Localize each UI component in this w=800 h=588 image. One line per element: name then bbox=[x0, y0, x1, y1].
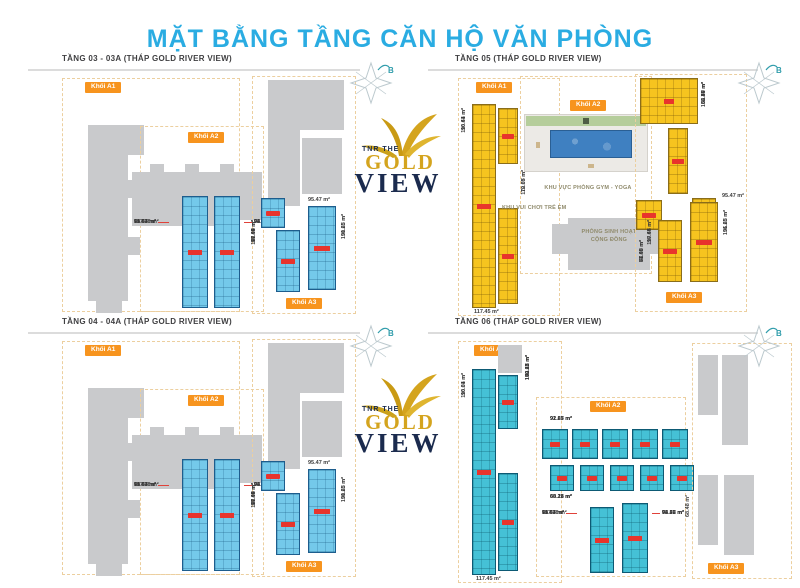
area-labels-left: 65.47 m²71.54 m²90.04 m²117.38 m² bbox=[542, 511, 586, 571]
unit-number-chip bbox=[587, 476, 597, 481]
lounge-chairs bbox=[528, 130, 548, 160]
area-label: 117.45 m² bbox=[252, 220, 258, 245]
unit-number-chip bbox=[281, 259, 295, 264]
building-gray bbox=[498, 345, 522, 373]
unit-number-chip bbox=[314, 509, 330, 514]
divider bbox=[428, 69, 758, 71]
floor-title: TẦNG 05 (THÁP GOLD RIVER VIEW) bbox=[455, 54, 602, 63]
unit-tower-yellow bbox=[690, 202, 718, 282]
unit-number-chip bbox=[647, 476, 657, 481]
floor-title: TẦNG 03 - 03A (THÁP GOLD RIVER VIEW) bbox=[62, 54, 232, 63]
building-gray bbox=[302, 138, 342, 194]
building-gray bbox=[698, 355, 718, 415]
block-chip-a3: Khối A3 bbox=[708, 563, 744, 574]
north-compass-icon: B bbox=[348, 323, 394, 369]
svg-text:B: B bbox=[388, 66, 394, 75]
north-compass-icon: B bbox=[736, 60, 782, 106]
area-labels-vertical: 77.45 m²81.09 m²90.44 m²117.45 m² bbox=[250, 483, 260, 575]
building-gray bbox=[300, 343, 344, 393]
building-gray bbox=[552, 224, 568, 254]
divider bbox=[28, 332, 360, 334]
unit-tower-blue bbox=[261, 461, 285, 491]
unit-tower-cyan bbox=[498, 375, 518, 429]
lounge-chairs bbox=[550, 162, 632, 169]
lounge-chair-icon bbox=[588, 164, 594, 168]
swimming-pool bbox=[550, 130, 632, 158]
building-gray bbox=[88, 125, 144, 155]
unit-tower-cyan bbox=[670, 465, 694, 491]
block-chip-a3: Khối A3 bbox=[286, 298, 322, 309]
area-label: 117.45 m² bbox=[476, 577, 501, 583]
tnr-gold-view-logo: TNR THE GOLD VIEW bbox=[352, 372, 448, 455]
unit-number-chip bbox=[266, 211, 280, 216]
building-gray bbox=[724, 475, 754, 555]
unit-tower-blue bbox=[214, 459, 240, 571]
area-label: 95.47 m² bbox=[308, 461, 330, 467]
svg-text:B: B bbox=[388, 329, 394, 338]
area-label: 94.06 m² bbox=[652, 511, 684, 517]
block-chip-a2: Khối A2 bbox=[570, 100, 606, 111]
unit-number-chip bbox=[477, 204, 491, 209]
unit-tower-yellow bbox=[658, 220, 682, 282]
building-gray bbox=[96, 301, 122, 313]
north-compass-icon: B bbox=[348, 60, 394, 106]
divider bbox=[428, 332, 758, 334]
unit-tower-blue bbox=[182, 459, 208, 571]
area-labels-vertical: 90.64 m²117.45 m² bbox=[646, 220, 656, 286]
block-chip-a3: Khối A3 bbox=[286, 561, 322, 572]
unit-number-chip bbox=[502, 520, 513, 525]
page-title: MẶT BẰNG TẦNG CĂN HỘ VĂN PHÒNG bbox=[0, 25, 800, 54]
unit-number-chip bbox=[188, 513, 203, 518]
unit-number-chip bbox=[595, 538, 609, 543]
unit-number-chip bbox=[502, 254, 513, 259]
area-label: 131.65 m² bbox=[342, 477, 348, 502]
area-label: 90.04 m² bbox=[462, 373, 468, 395]
unit-tower-blue bbox=[182, 196, 208, 308]
unit-number-chip bbox=[672, 159, 683, 164]
unit-number-chip bbox=[664, 99, 674, 104]
area-labels-vertical: 116.61 m²90.04 m² bbox=[460, 373, 470, 523]
area-label: 117.45 m² bbox=[252, 483, 258, 508]
unit-tower-yellow bbox=[498, 208, 518, 304]
building-gray bbox=[88, 388, 144, 418]
area-label: 117.38 m² bbox=[542, 511, 577, 517]
unit-tower-cyan bbox=[498, 473, 518, 571]
area-label: 70.65 m² bbox=[526, 355, 532, 377]
tree-row bbox=[526, 116, 646, 126]
unit-number-chip bbox=[617, 476, 627, 481]
lounge-chair-icon bbox=[536, 142, 540, 148]
unit-number-chip bbox=[314, 246, 330, 251]
building-gray bbox=[300, 80, 344, 130]
unit-number-chip bbox=[266, 474, 280, 479]
unit-tower-cyan bbox=[580, 465, 604, 491]
area-labels-vertical: 90.23 m²131.65 m² bbox=[340, 477, 350, 569]
area-labels-vertical: 96.23 m²131.65 m² bbox=[722, 210, 732, 288]
area-label: 68.48 m² bbox=[686, 495, 692, 517]
block-chip-a1: Khối A1 bbox=[476, 82, 512, 93]
unit-tower-cyan bbox=[472, 369, 496, 575]
unit-number-chip bbox=[502, 400, 513, 405]
area-label: 86.49 m² bbox=[702, 82, 708, 104]
area-labels-vertical: 116.61 m²90.44 m² bbox=[460, 108, 470, 258]
unit-tower-cyan bbox=[610, 465, 634, 491]
unit-number-chip bbox=[188, 250, 203, 255]
unit-tower-blue bbox=[214, 196, 240, 308]
floorplan-poster: MẶT BẰNG TẦNG CĂN HỘ VĂN PHÒNG TẦNG 03 -… bbox=[0, 0, 800, 588]
unit-tower-cyan bbox=[572, 429, 598, 459]
unit-number-chip bbox=[220, 513, 235, 518]
area-labels-left: 65.47 m²71.54 m²90.04 m²117.38 m² bbox=[134, 483, 178, 569]
building-gray bbox=[698, 475, 718, 545]
floor-section-tang-04: TẦNG 04 - 04A (THÁP GOLD RIVER VIEW) Khố… bbox=[40, 315, 360, 583]
block-chip-a1: Khối A1 bbox=[85, 345, 121, 356]
area-labels-vertical: 132.86 m²58.47 m²63.70 m²86.49 m² bbox=[700, 82, 710, 190]
north-compass-icon: B bbox=[736, 323, 782, 369]
unit-tower-yellow bbox=[472, 104, 496, 308]
unit-tower-yellow bbox=[498, 108, 518, 164]
unit-number-chip bbox=[477, 470, 491, 475]
block-chip-a2: Khối A2 bbox=[188, 132, 224, 143]
unit-tower-blue bbox=[276, 230, 300, 292]
area-label: 117.38 m² bbox=[134, 220, 169, 226]
floor-title: TẦNG 06 (THÁP GOLD RIVER VIEW) bbox=[455, 317, 602, 326]
unit-number-chip bbox=[502, 134, 513, 139]
area-label: 90.44 m² bbox=[462, 108, 468, 130]
area-label: 92.83 m² bbox=[550, 417, 572, 423]
floor-section-tang-03: TẦNG 03 - 03A (THÁP GOLD RIVER VIEW) Khố… bbox=[40, 52, 360, 314]
gym-yoga-label: KHU VỰC PHÒNG GYM - YOGA bbox=[524, 184, 652, 192]
building-gray bbox=[96, 564, 122, 576]
area-label: 131.65 m² bbox=[724, 210, 730, 235]
area-label: 95.47 m² bbox=[308, 198, 330, 204]
unit-tower-cyan bbox=[632, 429, 658, 459]
unit-number-chip bbox=[610, 442, 620, 447]
tnr-gold-view-logo: TNR THE GOLD VIEW bbox=[352, 112, 448, 195]
unit-number-chip bbox=[557, 476, 567, 481]
unit-number-chip bbox=[670, 442, 680, 447]
unit-tower-yellow bbox=[640, 78, 698, 124]
unit-tower-yellow bbox=[668, 128, 688, 194]
block-chip-a2: Khối A2 bbox=[188, 395, 224, 406]
building-gray bbox=[302, 401, 342, 457]
svg-text:B: B bbox=[776, 66, 782, 75]
block-chip-a1: Khối A1 bbox=[85, 82, 121, 93]
unit-tower-blue bbox=[308, 206, 336, 290]
divider bbox=[28, 69, 360, 71]
building-gray bbox=[268, 80, 300, 206]
community-room-label: PHÒNG SINH HOẠT CỘNG ĐỒNG bbox=[576, 228, 642, 245]
area-labels-left: 65.47 m²71.54 m²90.04 m²117.38 m² bbox=[134, 220, 178, 306]
unit-tower-cyan bbox=[640, 465, 664, 491]
unit-number-chip bbox=[628, 536, 643, 541]
svg-text:B: B bbox=[776, 329, 782, 338]
unit-number-chip bbox=[640, 442, 650, 447]
logo-view-text: VIEW bbox=[348, 432, 448, 455]
area-labels-vertical: 77.45 m²81.09 m²90.44 m²117.45 m² bbox=[250, 220, 260, 312]
area-labels-vertical: 90.23 m²131.65 m² bbox=[340, 214, 350, 306]
unit-tower-cyan bbox=[622, 503, 648, 573]
unit-number-chip bbox=[663, 249, 677, 254]
unit-number-chip bbox=[696, 240, 712, 245]
unit-number-chip bbox=[550, 442, 560, 447]
area-label: 131.65 m² bbox=[342, 214, 348, 239]
unit-number-chip bbox=[677, 476, 687, 481]
unit-tower-blue bbox=[308, 469, 336, 553]
unit-number-chip bbox=[281, 522, 295, 527]
building-gray bbox=[268, 343, 300, 469]
building-gray bbox=[88, 155, 128, 301]
area-label: 68.28 m² bbox=[550, 495, 572, 501]
area-labels-vertical: 152.27 m²83.11 m²100.12 m²70.65 m² bbox=[524, 355, 534, 551]
building-gray bbox=[88, 418, 128, 564]
area-label: 117.45 m² bbox=[648, 220, 654, 245]
floor-title: TẦNG 04 - 04A (THÁP GOLD RIVER VIEW) bbox=[62, 317, 232, 326]
unit-tower-cyan bbox=[602, 429, 628, 459]
area-label: 117.38 m² bbox=[134, 483, 169, 489]
block-chip-a3: Khối A3 bbox=[666, 292, 702, 303]
unit-tower-cyan bbox=[550, 465, 574, 491]
unit-tower-blue bbox=[276, 493, 300, 555]
block-chip-a2: Khối A2 bbox=[590, 401, 626, 412]
logo-view-text: VIEW bbox=[348, 172, 448, 195]
unit-tower-cyan bbox=[662, 429, 688, 459]
unit-tower-cyan bbox=[590, 507, 614, 573]
kids-area-label: KHU VUI CHƠI TRẺ EM bbox=[502, 204, 612, 212]
tree-icon bbox=[583, 118, 589, 124]
unit-number-chip bbox=[580, 442, 590, 447]
unit-tower-blue bbox=[261, 198, 285, 228]
unit-number-chip bbox=[220, 250, 235, 255]
area-label: 95.47 m² bbox=[722, 194, 744, 200]
unit-tower-cyan bbox=[542, 429, 568, 459]
